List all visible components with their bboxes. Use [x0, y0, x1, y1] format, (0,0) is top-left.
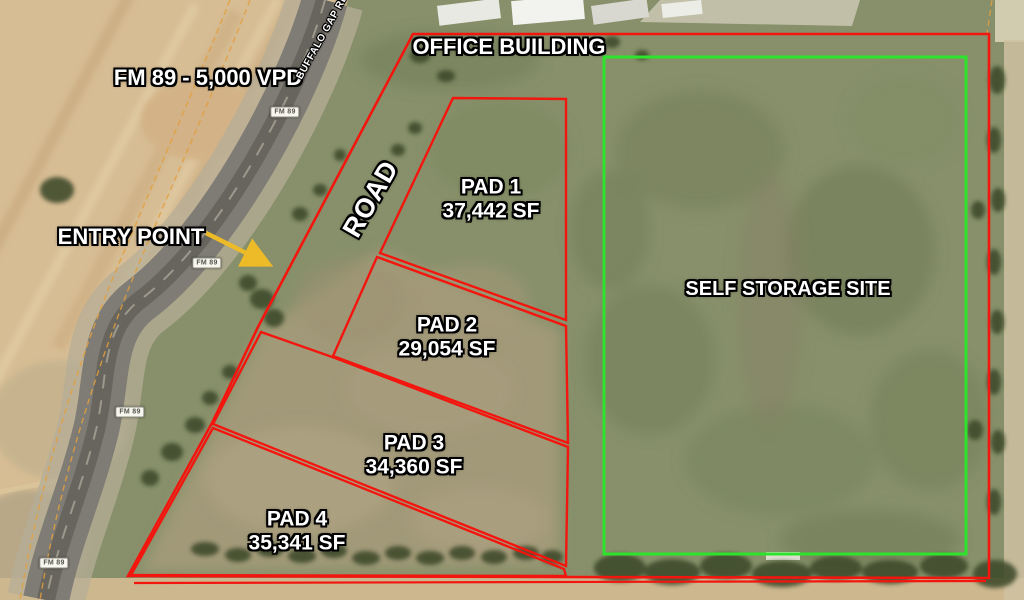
pad-3-label: PAD 3 34,360 SF	[366, 431, 463, 478]
pad-dirt-area	[140, 250, 560, 572]
pad-1-area: 37,442 SF	[443, 199, 540, 223]
site-aerial-map: FM 89 - 5,000 VPD BUFFALO GAP RD OFFICE …	[0, 0, 1024, 600]
self-storage-label: SELF STORAGE SITE	[685, 279, 890, 299]
traffic-count-label: FM 89 - 5,000 VPD	[114, 67, 302, 89]
pad-4-area: 35,341 SF	[249, 531, 346, 555]
fm89-shield-2: FM 89	[192, 258, 221, 269]
fm89-shield-1: FM 89	[270, 107, 299, 118]
pad-3-area: 34,360 SF	[366, 455, 463, 479]
office-building-label: OFFICE BUILDING	[412, 36, 605, 58]
fm89-shield-4: FM 89	[39, 558, 68, 569]
entry-point-label: ENTRY POINT	[58, 226, 205, 248]
pad-1-label: PAD 1 37,442 SF	[443, 175, 540, 222]
pad-3-name: PAD 3	[366, 431, 463, 455]
pad-1-name: PAD 1	[443, 175, 540, 199]
pad-2-label: PAD 2 29,054 SF	[399, 313, 496, 360]
fm89-shield-3: FM 89	[115, 407, 144, 418]
pad-2-name: PAD 2	[399, 313, 496, 337]
pad-4-label: PAD 4 35,341 SF	[249, 507, 346, 554]
pad-4-name: PAD 4	[249, 507, 346, 531]
aerial-photo	[0, 0, 1024, 600]
pad-2-area: 29,054 SF	[399, 337, 496, 361]
